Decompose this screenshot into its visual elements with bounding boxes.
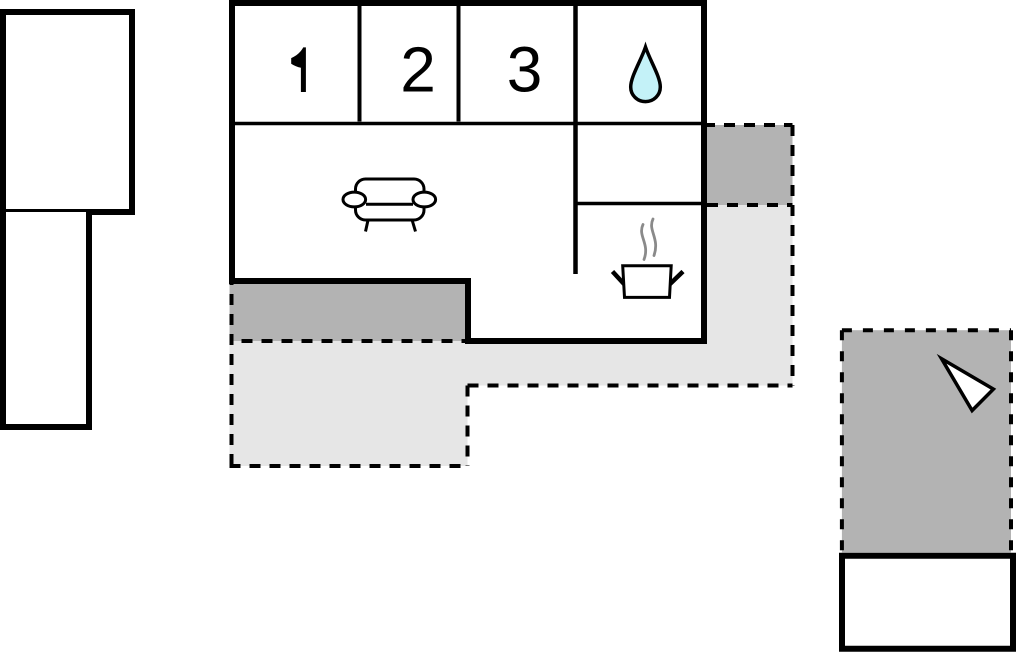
svg-text:3: 3	[507, 34, 543, 106]
svg-text:2: 2	[400, 34, 436, 106]
